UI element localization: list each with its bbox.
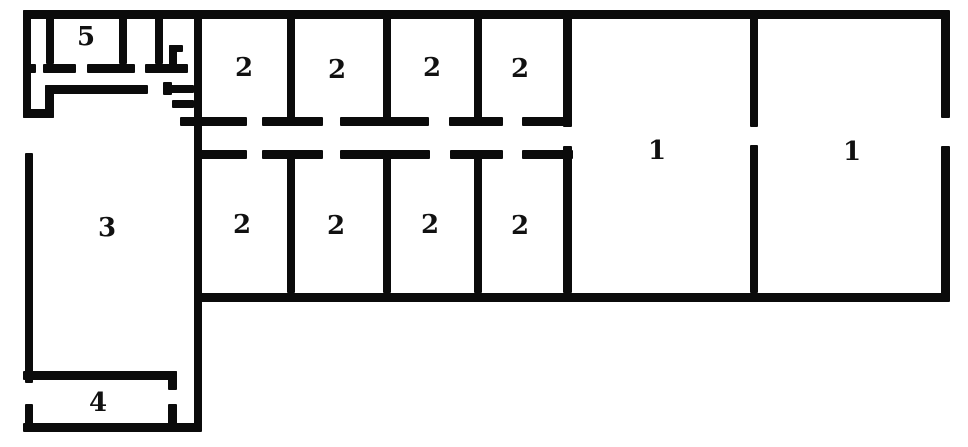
wall-bottom-row-divider-3 (474, 150, 482, 293)
wall-room5-right-partition (119, 17, 127, 64)
wall-room4-right-stub-upper (168, 371, 177, 390)
floor-plan: 1122222222345 (0, 0, 968, 447)
wall-vestibule-stub-lower (172, 100, 194, 108)
wall-door-wall-seg-b (43, 64, 76, 73)
wall-door-wall-seg-a (23, 64, 36, 73)
wall-left-corridor-end (23, 109, 54, 118)
wall-inner-wall-horizontal (45, 85, 148, 94)
wall-cell-partition (155, 17, 163, 64)
wall-bottom-row-divider-1 (287, 150, 295, 293)
room-label-room-4: 4 (89, 390, 107, 416)
wall-vestibule-stub-upper (170, 85, 194, 93)
wall-room5-left-partition (46, 17, 54, 64)
wall-main-bottom-wall (194, 293, 949, 302)
wall-rooms1-divider-lower (750, 145, 758, 293)
room-label-room-2-bottom-4: 2 (511, 213, 529, 239)
room-label-room-5: 5 (77, 24, 95, 50)
wall-bottom-row-divider-2 (383, 150, 391, 293)
room-label-room-2-bottom-3: 2 (421, 212, 439, 238)
wall-rooms2-right-wall-upper (563, 10, 572, 127)
wall-room4-top-wall (23, 371, 177, 380)
room-label-room-1-left: 1 (648, 138, 666, 164)
wall-main-vertical-wall (194, 10, 202, 432)
wall-door-wall-seg-d (145, 64, 188, 73)
wall-rooms2-right-wall-lower (563, 146, 572, 293)
wall-corridor-lower-seg-1 (194, 150, 247, 159)
wall-right-wall-upper (941, 10, 950, 118)
room-label-room-2-top-4: 2 (511, 56, 529, 82)
wall-room4-right-stub-lower (168, 404, 177, 425)
wall-top-row-divider-3 (474, 17, 482, 126)
room-label-room-2-top-1: 2 (235, 55, 253, 81)
wall-rooms1-divider-upper (750, 13, 758, 127)
room-label-room-3: 3 (98, 215, 116, 241)
wall-room3-left-wall (25, 153, 33, 383)
room-label-room-2-bottom-2: 2 (327, 213, 345, 239)
room-label-room-2-bottom-1: 2 (233, 212, 251, 238)
wall-hook-top (169, 45, 183, 52)
wall-top-row-divider-1 (287, 17, 295, 126)
room-label-room-2-top-2: 2 (328, 57, 346, 83)
wall-door-wall-seg-c (87, 64, 135, 73)
room-label-room-1-right: 1 (843, 139, 861, 165)
wall-top-row-divider-2 (383, 17, 391, 126)
wall-right-wall-lower (941, 146, 950, 302)
wall-corridor-upper-seg-1 (180, 117, 247, 126)
room-label-room-2-top-3: 2 (423, 55, 441, 81)
